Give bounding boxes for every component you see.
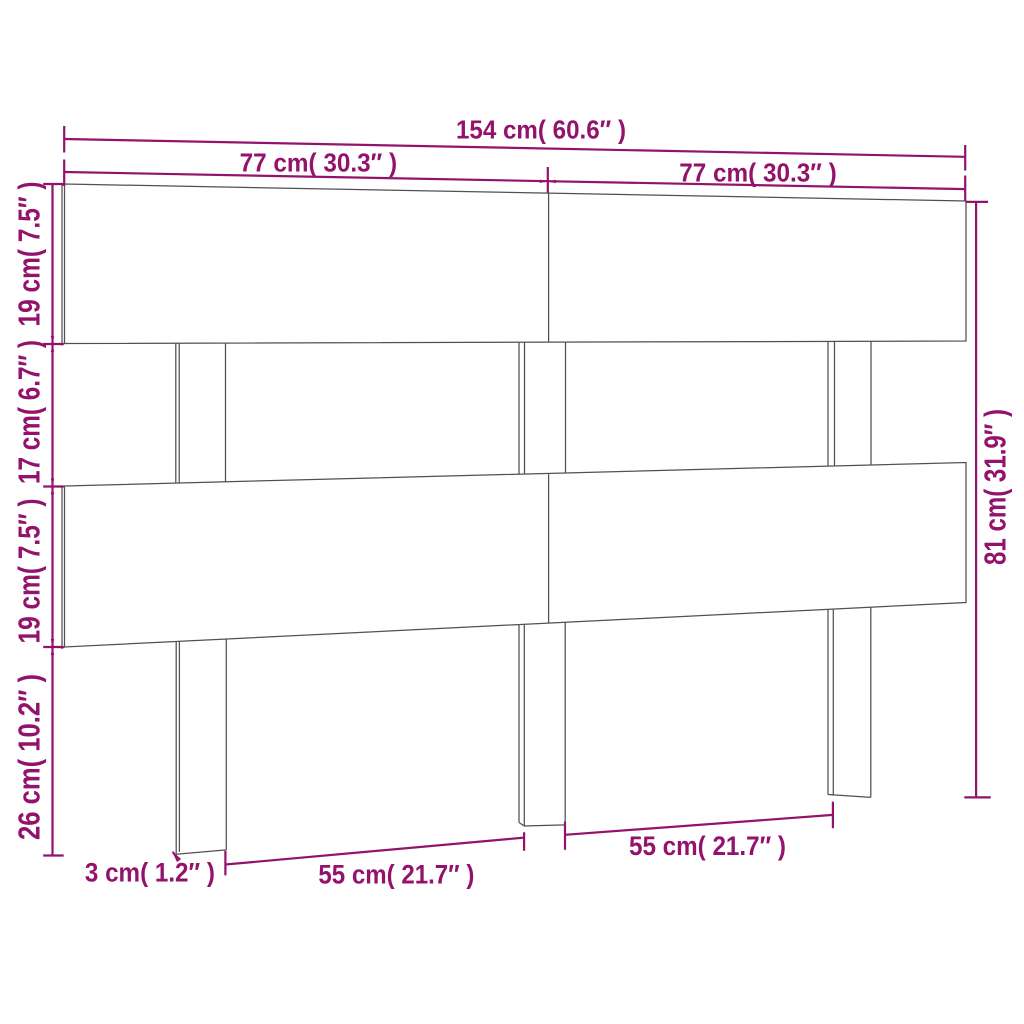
svg-text:154 cm( 60.6″ ): 154 cm( 60.6″ ): [456, 115, 626, 145]
svg-text:81 cm( 31.9″ ): 81 cm( 31.9″ ): [977, 409, 1012, 565]
svg-text:19 cm( 7.5″ ): 19 cm( 7.5″ ): [12, 182, 47, 327]
svg-text:55 cm( 21.7″ ): 55 cm( 21.7″ ): [629, 831, 786, 861]
svg-text:19 cm( 7.5″ ): 19 cm( 7.5″ ): [12, 499, 47, 644]
svg-text:17 cm( 6.7″ ): 17 cm( 6.7″ ): [12, 340, 47, 484]
svg-text:26 cm( 10.2″ ): 26 cm( 10.2″ ): [12, 674, 47, 840]
svg-text:55 cm( 21.7″ ): 55 cm( 21.7″ ): [318, 860, 474, 890]
svg-text:3 cm( 1.2″ ): 3 cm( 1.2″ ): [85, 858, 215, 888]
svg-text:77 cm( 30.3″ ): 77 cm( 30.3″ ): [240, 148, 398, 178]
svg-text:77 cm( 30.3″ ): 77 cm( 30.3″ ): [679, 158, 837, 188]
